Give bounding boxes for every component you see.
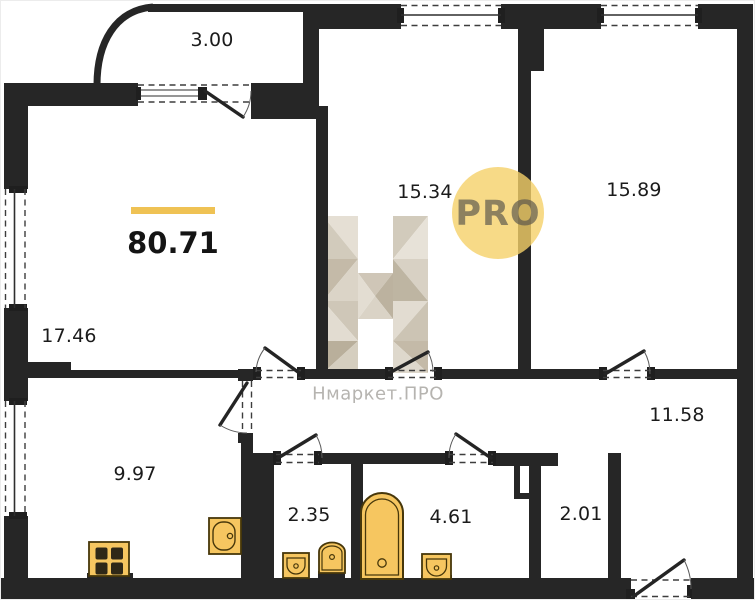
room-label-bedroom2: 15.89 bbox=[606, 179, 661, 201]
room-label-balcony: 3.00 bbox=[190, 29, 233, 51]
room-label-wc: 2.35 bbox=[287, 504, 330, 526]
watermark-text: Нмаркет.ПРО bbox=[312, 384, 444, 405]
total-area-value: 80.71 bbox=[127, 226, 219, 260]
floor-plan: PRO 80.71 3.00 17.46 15.34 15.89 11.58 9… bbox=[0, 0, 755, 600]
room-label-storage: 2.01 bbox=[559, 503, 602, 525]
total-area-accent-line bbox=[131, 207, 215, 214]
stove-icon bbox=[87, 542, 133, 579]
room-label-bedroom1: 15.34 bbox=[397, 181, 452, 203]
floor-plan-drawing: PRO bbox=[1, 1, 755, 600]
room-label-kitchen: 9.97 bbox=[113, 463, 156, 485]
bathroom-sink-icon bbox=[421, 554, 452, 580]
balcony-door-leaf bbox=[205, 91, 243, 117]
toilet-icon bbox=[318, 543, 345, 580]
pro-badge-text: PRO bbox=[455, 194, 540, 234]
pro-badge: PRO bbox=[452, 167, 544, 259]
entrance-door-leaf bbox=[634, 560, 684, 596]
room-label-living: 17.46 bbox=[41, 325, 96, 347]
kitchen-sink-icon bbox=[209, 518, 241, 554]
room-label-hallway: 11.58 bbox=[649, 404, 704, 426]
room-label-bathroom: 4.61 bbox=[429, 506, 472, 528]
balcony-curved-wall bbox=[97, 7, 153, 85]
h-logo-watermark bbox=[323, 216, 428, 373]
bathtub-icon bbox=[361, 493, 403, 579]
wc-sink-icon bbox=[283, 553, 309, 578]
living-room-door-leaf bbox=[265, 348, 298, 372]
